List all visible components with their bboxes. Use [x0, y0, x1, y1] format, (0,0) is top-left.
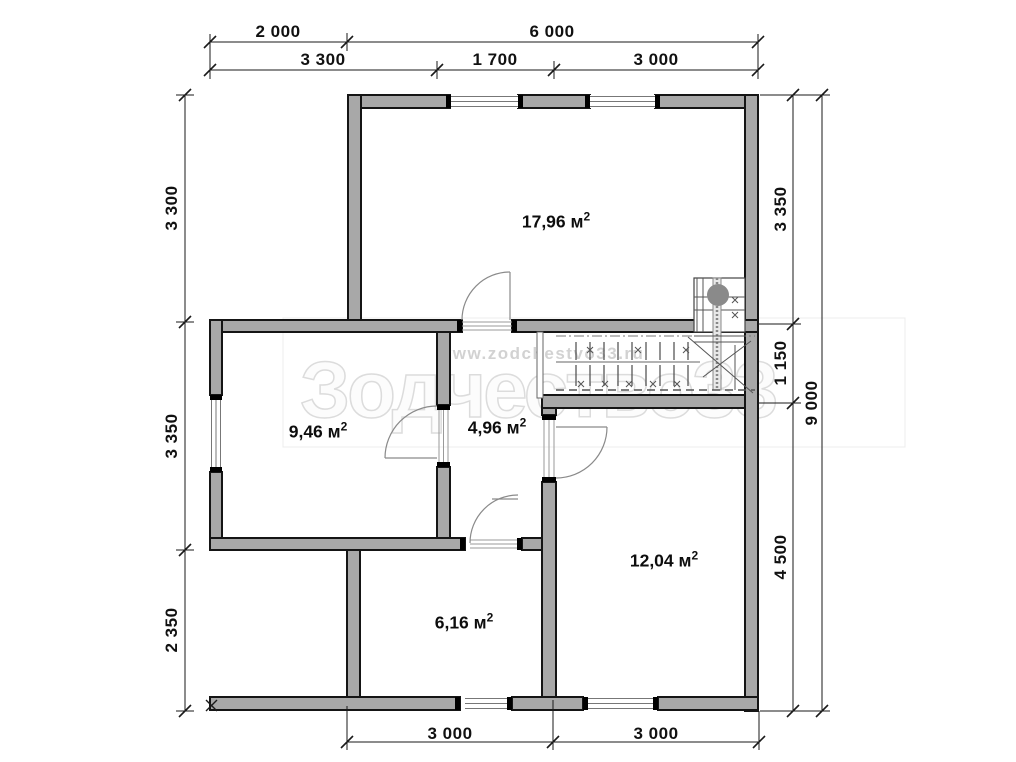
room-label-946: 9,46 м2 [289, 420, 348, 443]
room-label-1204: 12,04 м2 [630, 549, 698, 572]
dimension-lines [176, 33, 830, 750]
door-arc-hall [462, 272, 510, 320]
dim-left-2350: 2 350 [162, 607, 182, 652]
dim-top-1700: 1 700 [472, 50, 517, 70]
stair-newel-dot [707, 284, 729, 306]
plan-drawing [0, 0, 1016, 762]
dim-top-3000: 3 000 [633, 50, 678, 70]
room-label-496: 4,96 м2 [468, 416, 527, 439]
dim-right-9000: 9 000 [802, 380, 822, 425]
dim-left-3300: 3 300 [162, 185, 182, 230]
room-label-616: 6,16 м2 [435, 611, 494, 634]
dim-top-3300: 3 300 [300, 50, 345, 70]
door-arc-room946 [385, 406, 437, 458]
dim-right-3350: 3 350 [771, 186, 791, 231]
stair-partition [537, 332, 543, 398]
dim-left-3350: 3 350 [162, 413, 182, 458]
door-arc-room616 [470, 495, 518, 543]
room-label-1796: 17,96 м2 [522, 210, 590, 233]
dim-top-6000: 6 000 [529, 22, 574, 42]
dim-right-4500: 4 500 [771, 534, 791, 579]
dim-bottom-3000-a: 3 000 [427, 724, 472, 744]
dim-top-2000: 2 000 [255, 22, 300, 42]
dimension-ticks [179, 36, 828, 748]
dim-right-1150: 1 150 [771, 340, 791, 385]
stairs [556, 278, 755, 393]
door-arc-room1204 [556, 427, 607, 478]
dim-bottom-3000-b: 3 000 [633, 724, 678, 744]
floor-plan-canvas: www.zodchestvo33.ru Зодчество33 [0, 0, 1016, 762]
